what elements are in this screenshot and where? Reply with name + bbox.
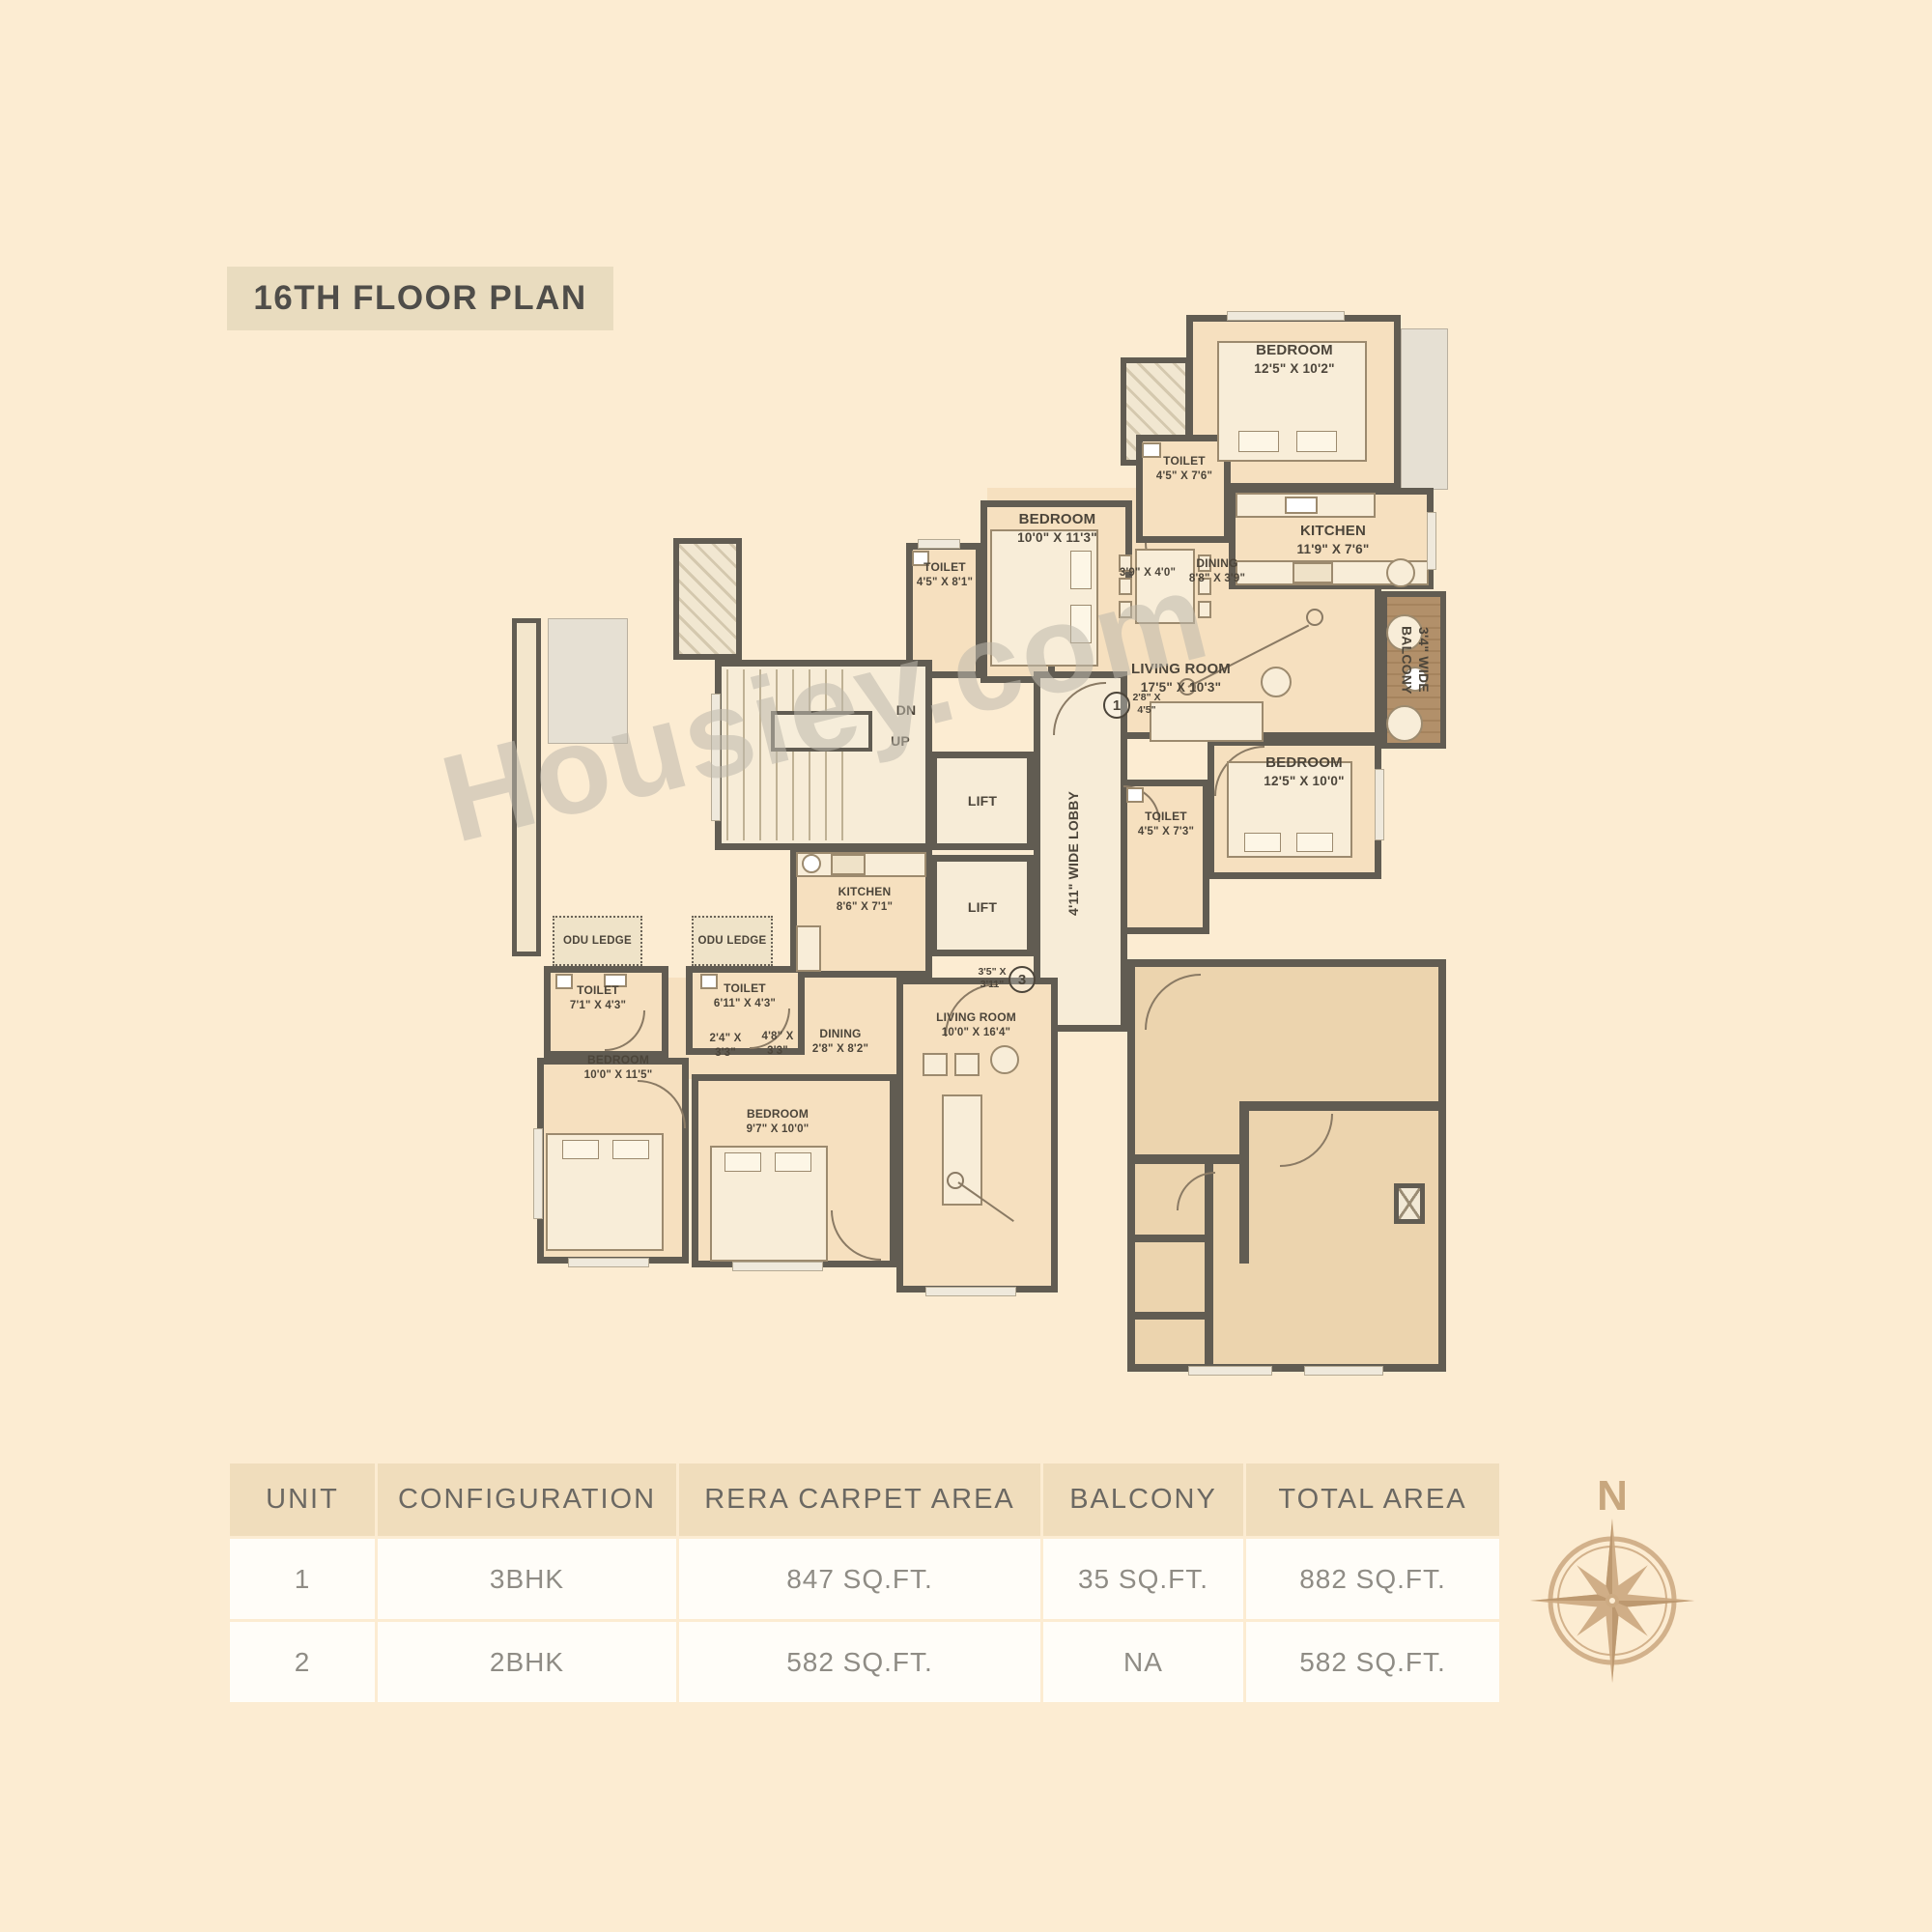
- unit1-dining-label: DINING 8'8" X 3'9": [1179, 556, 1256, 586]
- kitchen-counter: [796, 925, 821, 972]
- table-row: 847 SQ.FT.: [679, 1539, 1040, 1619]
- unit2-dining-label: DINING 2'8" X 8'2": [802, 1027, 879, 1057]
- window: [1427, 512, 1436, 570]
- odu-ledge-1-label: ODU LEDGE: [563, 935, 632, 947]
- neighbour-sliver: [512, 618, 541, 956]
- stove: [831, 854, 866, 875]
- unit1-passage-label: 3'9" X 4'0": [1109, 566, 1186, 581]
- unit1-side-ledge: [1401, 328, 1448, 490]
- unit2-passage2-label: 4'8" X 3'3": [755, 1030, 800, 1059]
- unit1-balcony-label: 3'4" WIDE BALCONY: [1399, 607, 1432, 713]
- table-header-balcony: BALCONY: [1043, 1463, 1243, 1536]
- table-row: 3BHK: [378, 1539, 676, 1619]
- window: [568, 1258, 649, 1267]
- stove: [1293, 562, 1333, 583]
- stair-treads: [726, 669, 847, 840]
- unit2-toilet1-label: TOILET 7'1" X 4'3": [558, 983, 638, 1013]
- odu-ledge-2-label: ODU LEDGE: [697, 935, 766, 947]
- floor-plan: ODU LEDGE ODU LEDGE: [512, 307, 1454, 1384]
- unit2-toilet2-label: TOILET 6'11" X 4'3": [701, 981, 788, 1011]
- compass-rose-icon: [1520, 1509, 1704, 1692]
- unit1-toilet2-label: TOILET 4'5" X 8'1": [910, 560, 980, 590]
- pillow: [562, 1140, 599, 1159]
- side-table: [990, 1045, 1019, 1074]
- unit1-bedroom3-label: BEDROOM 12'5" X 10'0": [1246, 753, 1362, 789]
- unit2-marker: 3'5" X 3'11" 3: [978, 966, 1036, 993]
- chair: [1119, 601, 1132, 618]
- planter-ledge: [548, 618, 628, 744]
- floor-lamp: [1306, 609, 1323, 626]
- stair-up-label: UP: [881, 732, 920, 750]
- adjacent-unit-wall: [1131, 1154, 1247, 1164]
- wc: [1126, 787, 1144, 803]
- table-row: NA: [1043, 1622, 1243, 1702]
- window: [1304, 1366, 1383, 1376]
- adjacent-unit-wall: [1131, 1312, 1208, 1320]
- unit1-living-label: LIVING ROOM 17'5" X 10'3": [1111, 660, 1251, 696]
- pillow: [775, 1152, 811, 1172]
- window: [925, 1287, 1016, 1296]
- odu-ledge-2: ODU LEDGE: [692, 916, 773, 966]
- sofa: [1150, 701, 1264, 742]
- unit1-bedroom1-label: BEDROOM 12'5" X 10'2": [1232, 341, 1357, 377]
- table-header-total-area: TOTAL AREA: [1246, 1463, 1499, 1536]
- kitchen-sink: [802, 854, 821, 873]
- table-row: 582 SQ.FT.: [679, 1622, 1040, 1702]
- chair: [1198, 601, 1211, 618]
- floor-lamp: [947, 1172, 964, 1189]
- window: [1375, 769, 1384, 840]
- adjacent-unit-wall: [1244, 1101, 1442, 1111]
- table-row: 582 SQ.FT.: [1246, 1622, 1499, 1702]
- unit1-kitchen-label: KITCHEN 11'9" X 7'6": [1275, 522, 1391, 557]
- pillow: [1238, 431, 1279, 452]
- window: [1188, 1366, 1272, 1376]
- adjacent-unit-shaft: [1394, 1183, 1425, 1224]
- stair-landing: [771, 711, 872, 752]
- chair: [954, 1053, 980, 1076]
- pillow: [1244, 833, 1281, 852]
- table-row: 2: [230, 1622, 375, 1702]
- table-row: 1: [230, 1539, 375, 1619]
- unit1-toilet3-label: TOILET 4'5" X 7'3": [1128, 810, 1204, 839]
- adjacent-unit-wall: [1131, 1235, 1208, 1242]
- chair: [923, 1053, 948, 1076]
- table-row: 35 SQ.FT.: [1043, 1539, 1243, 1619]
- window: [533, 1128, 543, 1219]
- lift1-label: LIFT: [949, 792, 1016, 810]
- unit2-kitchen-label: KITCHEN 8'6" X 7'1": [821, 885, 908, 915]
- pillow: [724, 1152, 761, 1172]
- pillow: [1070, 605, 1092, 643]
- pillow: [612, 1140, 649, 1159]
- table-header-configuration: CONFIGURATION: [378, 1463, 676, 1536]
- table-header-unit: UNIT: [230, 1463, 375, 1536]
- stair-dn-label: DN: [887, 701, 925, 719]
- table-row: 882 SQ.FT.: [1246, 1539, 1499, 1619]
- adjacent-unit-wall: [1239, 1101, 1249, 1264]
- unit1-marker: 1 2'8" X 4'5": [1103, 692, 1161, 719]
- washing-machine: [1386, 558, 1415, 587]
- unit2-bedroom1-label: BEDROOM 10'0" X 11'5": [555, 1053, 681, 1083]
- pillow: [1070, 551, 1092, 589]
- odu-ledge-1: ODU LEDGE: [553, 916, 642, 966]
- window: [918, 539, 960, 549]
- window: [711, 694, 721, 821]
- duct-shaft: [673, 538, 742, 660]
- window: [1227, 311, 1345, 321]
- unit1-toilet1-label: TOILET 4'5" X 7'6": [1145, 454, 1224, 484]
- side-table: [1261, 667, 1292, 697]
- lift2-label: LIFT: [949, 898, 1016, 916]
- window: [732, 1262, 823, 1271]
- table-row: 2BHK: [378, 1622, 676, 1702]
- unit2-passage1-label: 2'4" X 3'3": [703, 1032, 748, 1061]
- pillow: [1296, 431, 1337, 452]
- sofa: [942, 1094, 982, 1206]
- kitchen-sink: [1285, 497, 1318, 514]
- unit2-living-label: LIVING ROOM 10'0" X 16'4": [896, 1010, 1056, 1040]
- pillow: [1296, 833, 1333, 852]
- unit1-bedroom2-label: BEDROOM 10'0" X 11'3": [992, 510, 1122, 546]
- lobby-label: 4'11" WIDE LOBBY: [1065, 752, 1082, 954]
- area-table: UNIT CONFIGURATION RERA CARPET AREA BALC…: [230, 1463, 1488, 1702]
- table-header-rera-carpet-area: RERA CARPET AREA: [679, 1463, 1040, 1536]
- unit2-bedroom2-label: BEDROOM 9'7" X 10'0": [720, 1107, 836, 1137]
